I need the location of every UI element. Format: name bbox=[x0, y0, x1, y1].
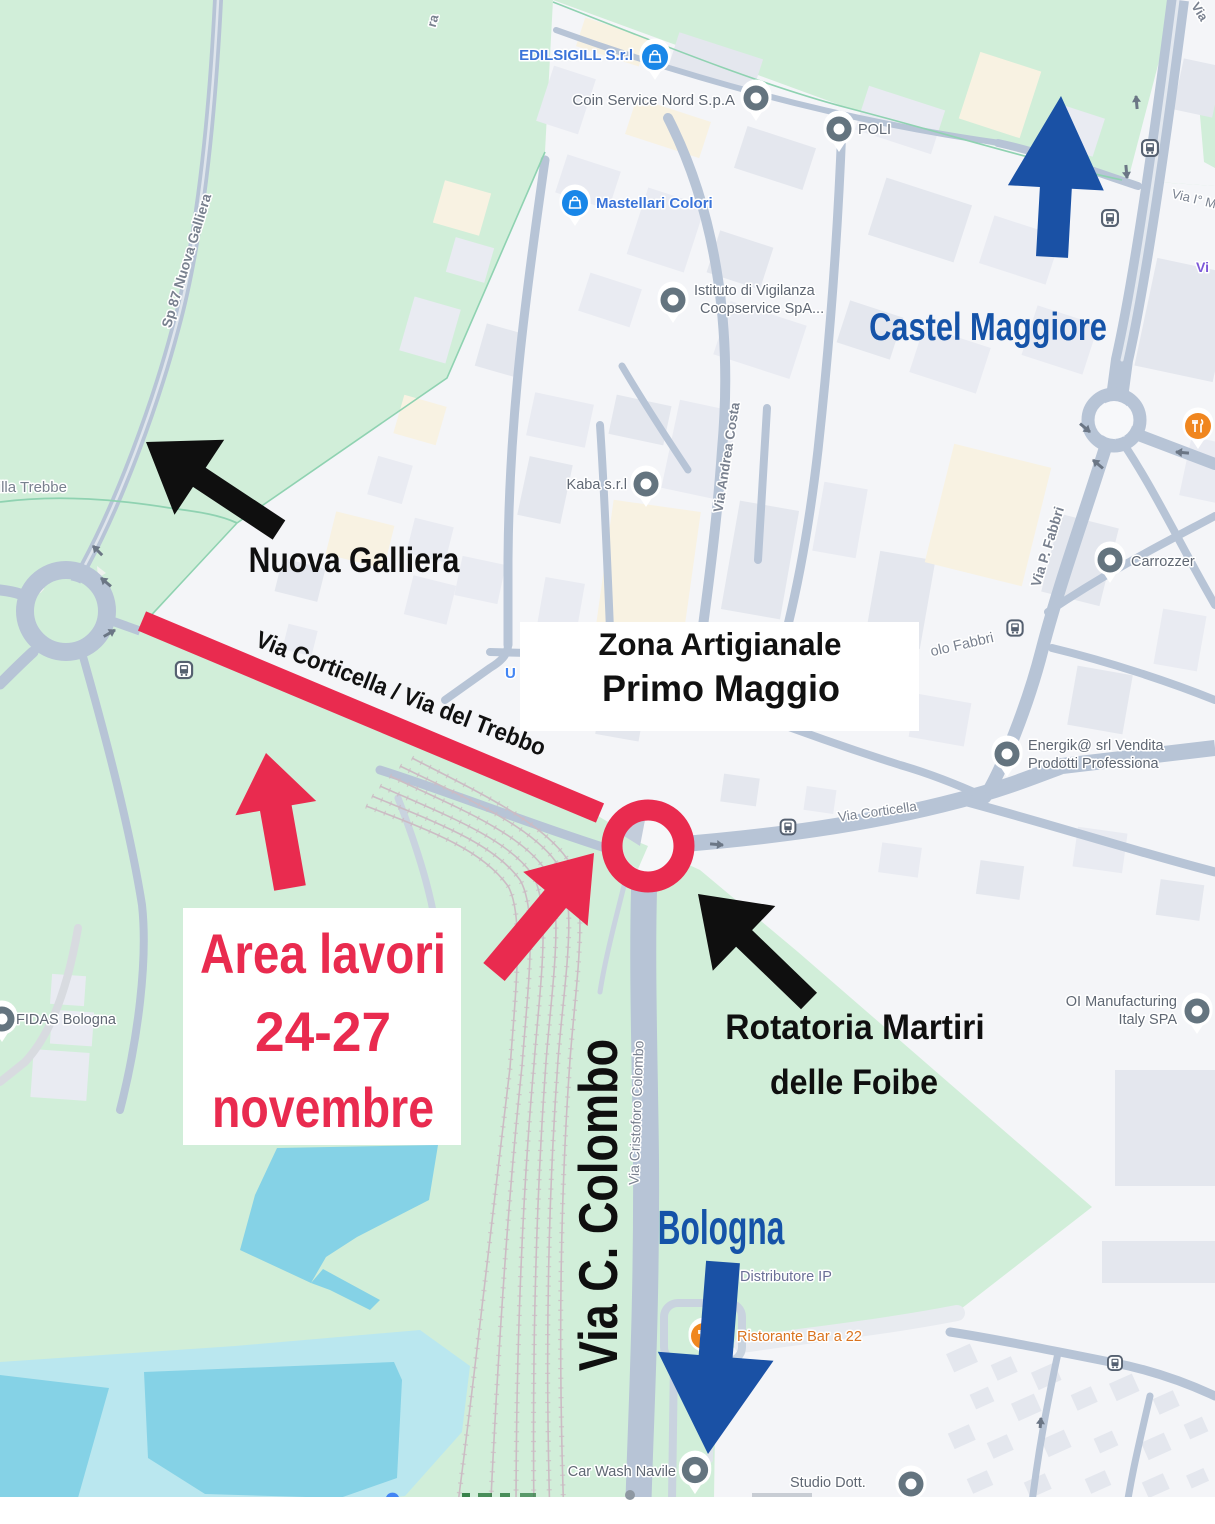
svg-text:novembre: novembre bbox=[212, 1076, 434, 1139]
svg-text:Distributore IP: Distributore IP bbox=[740, 1269, 832, 1285]
svg-text:Bologna: Bologna bbox=[658, 1200, 785, 1254]
svg-text:delle Foibe: delle Foibe bbox=[770, 1064, 938, 1103]
svg-text:Car Wash Navile: Car Wash Navile bbox=[568, 1464, 676, 1480]
svg-text:Italy SPA: Italy SPA bbox=[1118, 1012, 1177, 1028]
svg-text:EDILSIGILL S.r.l: EDILSIGILL S.r.l bbox=[519, 47, 633, 64]
svg-text:Energik@ srl Vendita: Energik@ srl Vendita bbox=[1028, 738, 1165, 754]
svg-text:Ristorante Bar a 22: Ristorante Bar a 22 bbox=[737, 1329, 862, 1345]
svg-text:Area lavori: Area lavori bbox=[200, 923, 446, 985]
svg-text:Mastellari Colori: Mastellari Colori bbox=[596, 195, 713, 212]
svg-text:Coopservice SpA...: Coopservice SpA... bbox=[700, 301, 824, 317]
svg-text:24-27: 24-27 bbox=[255, 1001, 391, 1064]
svg-text:Carrozzer: Carrozzer bbox=[1131, 554, 1195, 570]
svg-text:FIDAS Bologna: FIDAS Bologna bbox=[16, 1012, 117, 1028]
svg-text:Primo Maggio: Primo Maggio bbox=[602, 667, 840, 709]
svg-text:Castel Maggiore: Castel Maggiore bbox=[869, 306, 1107, 349]
svg-text:Kaba s.r.l: Kaba s.r.l bbox=[567, 477, 627, 493]
svg-text:Prodotti Professiona: Prodotti Professiona bbox=[1028, 756, 1160, 772]
svg-text:OI Manufacturing: OI Manufacturing bbox=[1066, 994, 1177, 1010]
svg-text:Villa Trebbe: Villa Trebbe bbox=[0, 479, 67, 496]
svg-text:Istituto di Vigilanza: Istituto di Vigilanza bbox=[694, 283, 816, 299]
svg-text:Via C. Colombo: Via C. Colombo bbox=[567, 1039, 629, 1371]
svg-text:Studio Dott.: Studio Dott. bbox=[790, 1475, 866, 1491]
svg-text:Zona Artigianale: Zona Artigianale bbox=[598, 627, 841, 662]
svg-text:Vi: Vi bbox=[1196, 259, 1209, 275]
svg-text:POLI: POLI bbox=[858, 122, 891, 138]
svg-text:Nuova Galliera: Nuova Galliera bbox=[249, 540, 460, 580]
svg-text:Rotatoria Martiri: Rotatoria Martiri bbox=[725, 1008, 984, 1047]
svg-text:U: U bbox=[505, 665, 516, 682]
svg-text:Coin Service Nord S.p.A: Coin Service Nord S.p.A bbox=[572, 92, 735, 109]
